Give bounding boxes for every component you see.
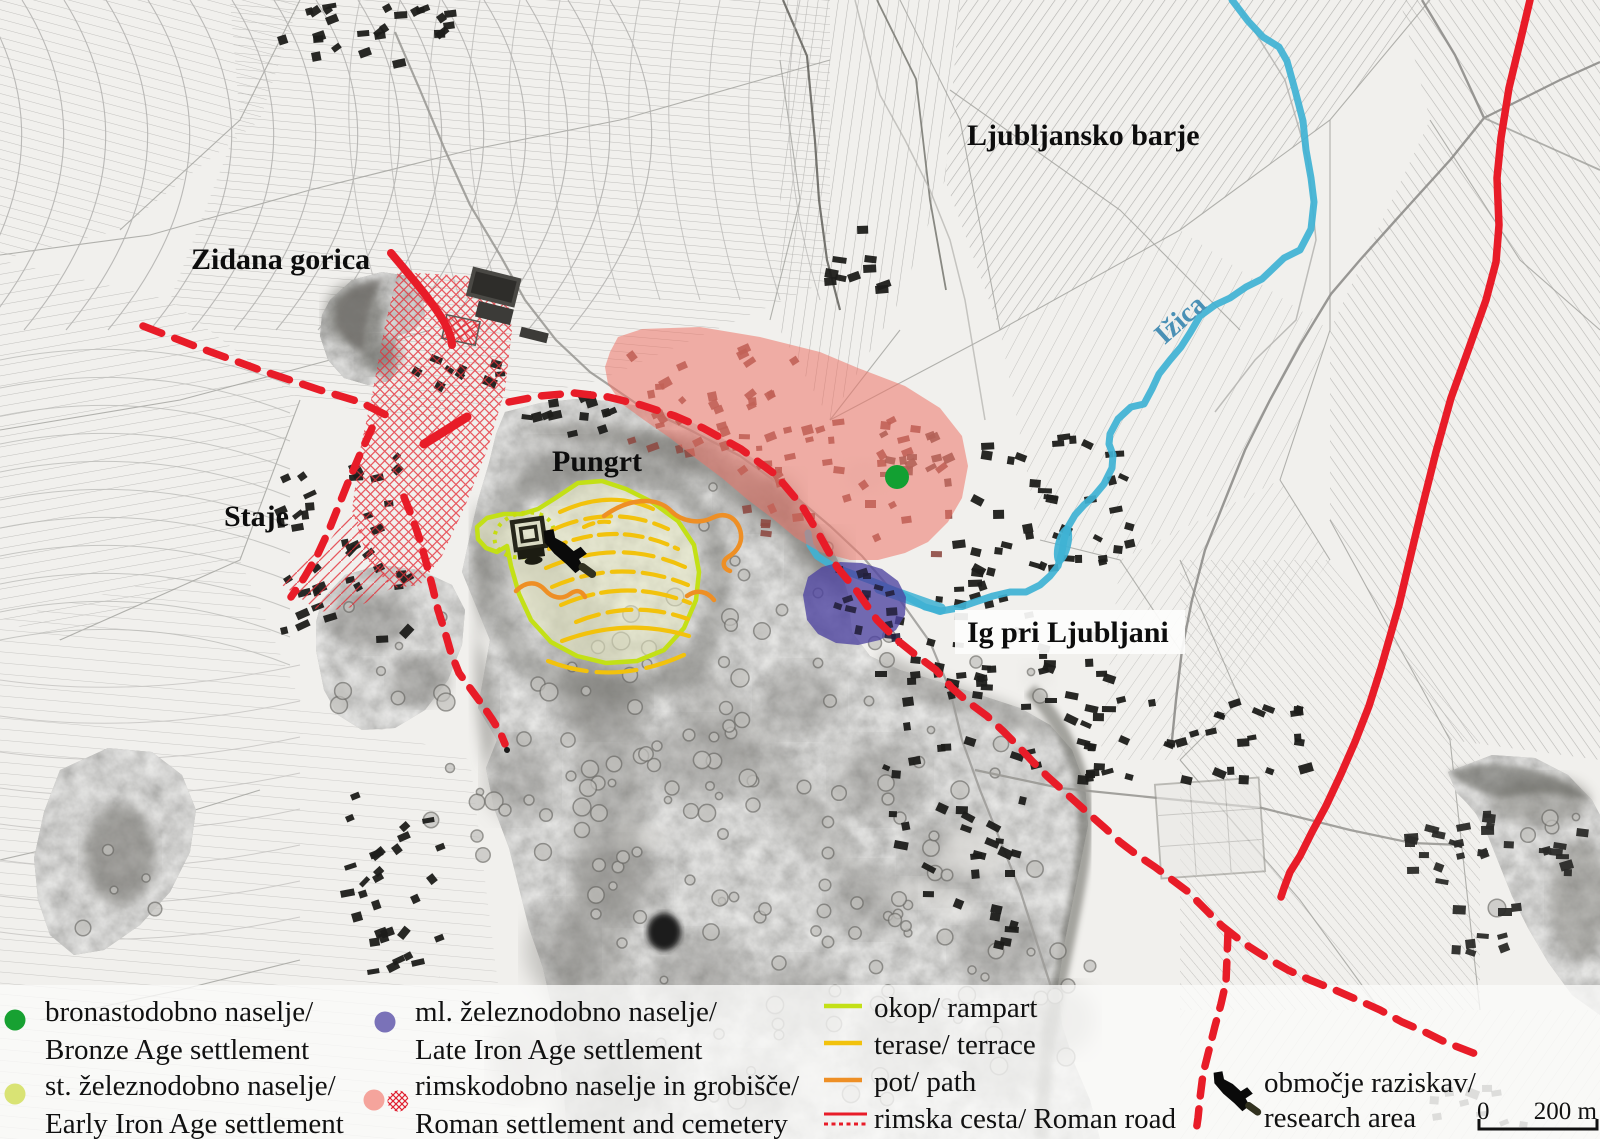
svg-text:Roman settlement and cemetery: Roman settlement and cemetery [415,1108,788,1139]
svg-text:bronastodobno naselje/: bronastodobno naselje/ [45,996,314,1028]
svg-text:research area: research area [1264,1102,1416,1134]
svg-text:Ljubljansko barje: Ljubljansko barje [967,119,1200,152]
svg-text:rimska cesta/ Roman road: rimska cesta/ Roman road [874,1103,1176,1135]
svg-text:ml. železnodobno naselje/: ml. železnodobno naselje/ [415,996,718,1028]
svg-text:Ig pri Ljubljani: Ig pri Ljubljani [967,616,1169,649]
svg-text:Late Iron Age settlement: Late Iron Age settlement [415,1034,702,1066]
svg-text:območje raziskav/: območje raziskav/ [1264,1067,1477,1099]
svg-text:st. železnodobno naselje/: st. železnodobno naselje/ [45,1070,337,1102]
svg-text:terase/ terrace: terase/ terrace [874,1029,1036,1061]
svg-text:Pungrt: Pungrt [552,445,642,478]
svg-text:rimskodobno naselje in grobišč: rimskodobno naselje in grobišče/ [415,1070,800,1102]
svg-text:Early Iron Age settlement: Early Iron Age settlement [45,1108,344,1139]
svg-text:Bronze Age settlement: Bronze Age settlement [45,1034,309,1066]
svg-text:Staje: Staje [224,500,289,533]
svg-text:pot/ path: pot/ path [874,1066,977,1098]
svg-text:okop/ rampart: okop/ rampart [874,992,1037,1024]
svg-text:Zidana gorica: Zidana gorica [191,243,370,276]
svg-text:200 m: 200 m [1534,1098,1598,1125]
